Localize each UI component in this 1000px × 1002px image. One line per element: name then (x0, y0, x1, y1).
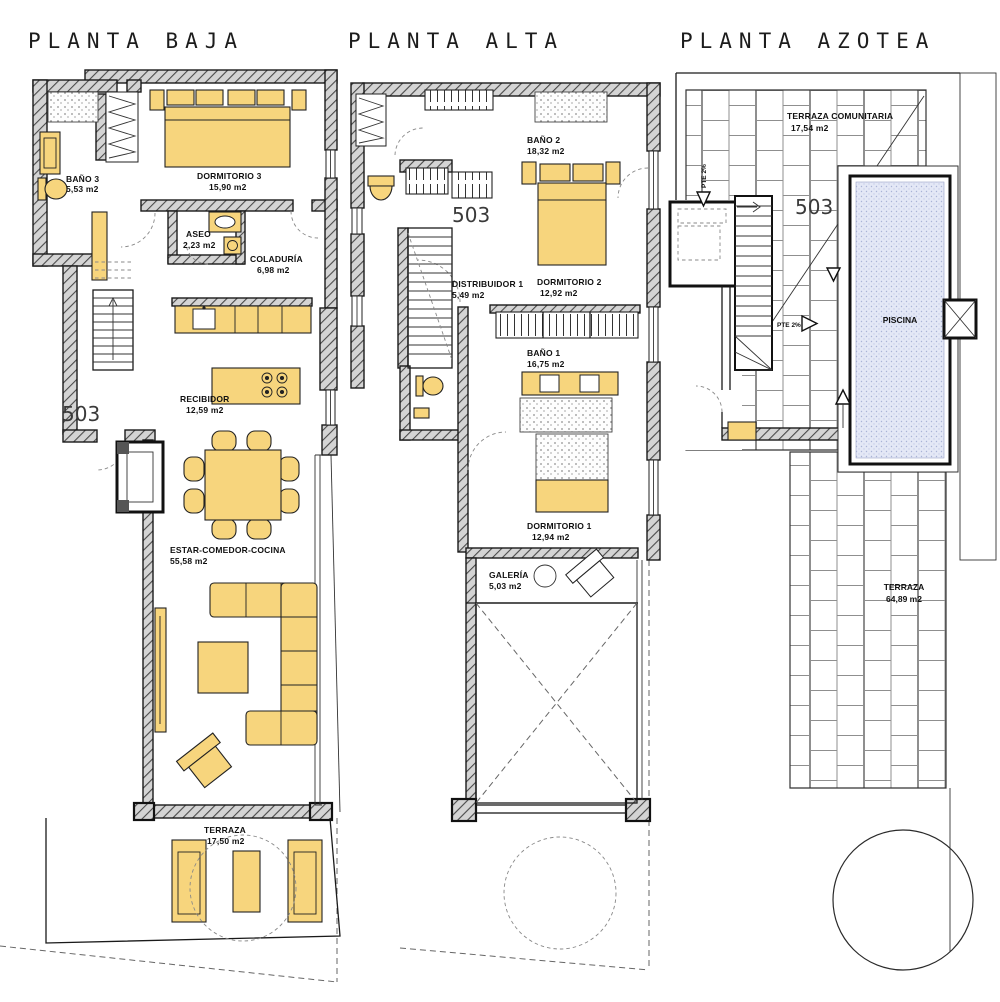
title-planta-alta: PLANTA ALTA (348, 29, 564, 53)
room-label: RECIBIDOR (180, 394, 230, 404)
site-boundary-line (331, 455, 340, 812)
bed-dormitorio1 (536, 434, 608, 512)
bed-dormitorio3 (150, 90, 306, 167)
closet-hangers (356, 94, 386, 146)
room-label: PISCINA (883, 315, 917, 325)
room-area: 6,98 m2 (257, 265, 290, 275)
planta-alta-plan: BAÑO 2 18,32 m2 503 DISTRIBUIDOR 1 5,49 … (351, 83, 660, 970)
wardrobe-top (425, 90, 493, 110)
terraza-tiles (790, 452, 946, 788)
room-label: COLADURÍA (250, 254, 303, 264)
room-label: GALERÍA (489, 570, 529, 580)
room-label: TERRAZA COMUNITARIA (787, 111, 893, 121)
sun-lounger (288, 840, 322, 922)
bathtub-bano3 (40, 132, 60, 174)
sun-lounger (172, 840, 206, 922)
floor-plan-sheet: PLANTA BAJA PLANTA ALTA PLANTA AZOTEA (0, 0, 1000, 1002)
shower-floor-bano2 (535, 92, 607, 122)
room-area: 12,92 m2 (540, 288, 578, 298)
room-area: 16,75 m2 (527, 359, 565, 369)
planta-azotea-plan: PTE 2% PTE 2% TERRAZA COMUNITARIA 17,54 … (668, 73, 996, 970)
room-label: TERRAZA (884, 582, 925, 592)
armchair-living (177, 733, 237, 791)
room-area: 5,53 m2 (66, 184, 99, 194)
tree-canopy (833, 830, 973, 970)
room-label: DISTRIBUIDOR 1 (452, 279, 523, 289)
kitchen-counter (175, 306, 311, 333)
unit-number: 503 (795, 195, 833, 219)
room-area: 17,54 m2 (791, 123, 829, 133)
room-label: DORMITORIO 2 (537, 277, 602, 287)
room-label: ASEO (186, 229, 211, 239)
room-area: 5,03 m2 (489, 581, 522, 591)
stairs-alta (408, 228, 452, 368)
dining-set (184, 431, 299, 539)
room-area: 18,32 m2 (527, 146, 565, 156)
room-area: 12,59 m2 (186, 405, 224, 415)
tree-canopy-dashed (504, 837, 616, 949)
planta-baja-plan: BAÑO 3 5,53 m2 DORMITORIO 3 15,90 m2 ASE… (0, 70, 340, 982)
room-label: ESTAR-COMEDOR-COCINA (170, 545, 286, 555)
room-label: TERRAZA (204, 825, 246, 835)
wardrobe-band (496, 312, 638, 338)
sink-aseo (209, 212, 241, 232)
stairs-azotea (735, 196, 772, 370)
room-area: 17,50 m2 (207, 836, 245, 846)
title-planta-baja: PLANTA BAJA (28, 29, 244, 53)
room-label: DORMITORIO 3 (197, 171, 262, 181)
room-area: 15,90 m2 (209, 182, 247, 192)
site-boundary-dashed (400, 560, 649, 970)
room-label: DORMITORIO 1 (527, 521, 592, 531)
coffee-table (198, 642, 248, 693)
washer-coladuria (224, 237, 241, 254)
shower-floor-bano3 (48, 92, 98, 122)
unit-number: 503 (452, 203, 490, 227)
bench (728, 422, 756, 440)
room-label: BAÑO 1 (527, 348, 560, 358)
toilet-bano3 (38, 178, 67, 200)
closet-dormitorio3 (106, 92, 138, 162)
room-label: BAÑO 3 (66, 174, 99, 184)
room-area: 55,58 m2 (170, 556, 208, 566)
vanity-bano1 (522, 372, 618, 395)
double-height-void (476, 603, 637, 813)
washing-machine (534, 565, 556, 587)
room-area: 64,89 m2 (886, 594, 922, 604)
stairs-baja (92, 212, 133, 370)
terrace-table (233, 851, 260, 912)
room-area: 2,23 m2 (183, 240, 216, 250)
title-planta-azotea: PLANTA AZOTEA (680, 29, 935, 53)
room-area: 12,94 m2 (532, 532, 570, 542)
toilet-small-bath (414, 376, 443, 418)
unit-number: 503 (62, 402, 100, 426)
site-boundary-dashed (0, 818, 337, 982)
room-area: 5,49 m2 (452, 290, 485, 300)
skylight-box (944, 300, 976, 338)
floor-plan-drawing: PLANTA BAJA PLANTA ALTA PLANTA AZOTEA (0, 0, 1000, 1002)
slope-label: PTE 2% (701, 164, 708, 188)
tv-unit (155, 608, 166, 732)
shower-floor-bano1 (520, 398, 612, 432)
slope-label: PTE 2% (777, 322, 801, 329)
room-label: BAÑO 2 (527, 135, 560, 145)
terrace-baja (46, 818, 340, 943)
sink-bano2 (368, 176, 394, 200)
bed-dormitorio2 (522, 162, 620, 265)
walls-alta (351, 83, 660, 821)
entry-porch (117, 442, 163, 512)
